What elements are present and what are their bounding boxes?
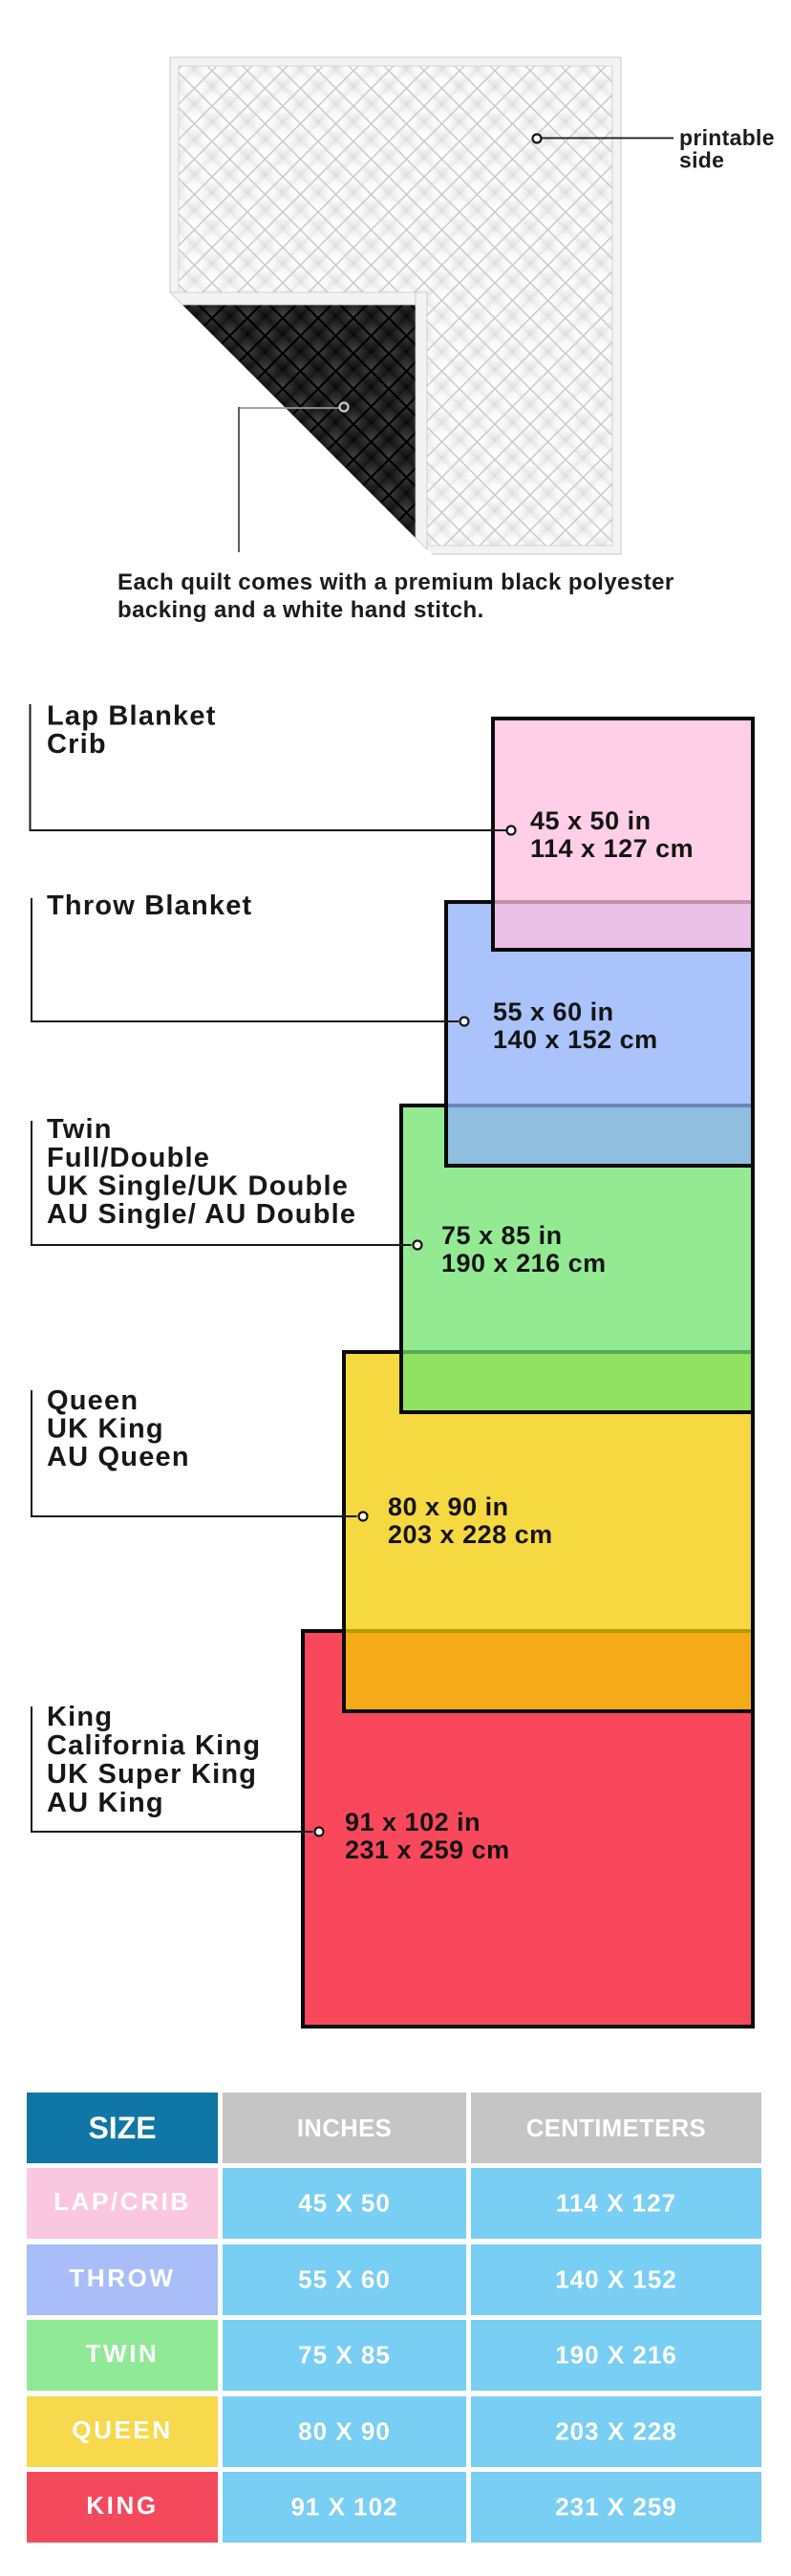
svg-text:UK Single/UK Double: UK Single/UK Double bbox=[47, 1171, 349, 1202]
svg-text:80 X 90: 80 X 90 bbox=[298, 2417, 391, 2446]
svg-text:INCHES: INCHES bbox=[297, 2115, 392, 2142]
svg-text:side: side bbox=[679, 148, 724, 173]
svg-text:Crib: Crib bbox=[47, 729, 107, 760]
svg-text:140 x 152 cm: 140 x 152 cm bbox=[493, 1025, 658, 1054]
svg-text:45 X 50: 45 X 50 bbox=[298, 2189, 391, 2218]
svg-text:UK King: UK King bbox=[47, 1414, 164, 1445]
svg-text:CENTIMETERS: CENTIMETERS bbox=[526, 2115, 706, 2142]
svg-text:Queen: Queen bbox=[47, 1385, 139, 1416]
svg-text:KING: KING bbox=[86, 2491, 158, 2520]
svg-text:AU King: AU King bbox=[47, 1788, 164, 1818]
svg-text:Throw Blanket: Throw Blanket bbox=[47, 891, 252, 921]
svg-text:55 x 60 in: 55 x 60 in bbox=[493, 998, 614, 1026]
svg-text:91 X 102: 91 X 102 bbox=[290, 2493, 397, 2522]
svg-text:printable: printable bbox=[679, 125, 775, 150]
svg-text:190 x 216 cm: 190 x 216 cm bbox=[441, 1249, 607, 1277]
svg-text:114 X 127: 114 X 127 bbox=[556, 2189, 676, 2218]
svg-text:King: King bbox=[47, 1702, 113, 1732]
svg-text:backing and a white hand stitc: backing and a white hand stitch. bbox=[118, 597, 484, 623]
svg-text:TWIN: TWIN bbox=[86, 2339, 160, 2368]
svg-text:AU Queen: AU Queen bbox=[47, 1442, 190, 1472]
svg-text:75 X 85: 75 X 85 bbox=[298, 2341, 391, 2370]
svg-text:UK Super King: UK Super King bbox=[47, 1759, 257, 1790]
svg-text:75 x 85 in: 75 x 85 in bbox=[441, 1221, 563, 1250]
svg-text:91 x 102 in: 91 x 102 in bbox=[345, 1808, 481, 1836]
svg-text:Lap Blanket: Lap Blanket bbox=[47, 701, 217, 732]
svg-text:45 x 50 in: 45 x 50 in bbox=[530, 806, 652, 835]
svg-text:LAP/CRIB: LAP/CRIB bbox=[53, 2187, 191, 2216]
svg-text:AU Single/ AU Double: AU Single/ AU Double bbox=[47, 1199, 356, 1230]
svg-text:203 X 228: 203 X 228 bbox=[555, 2417, 677, 2446]
svg-text:231 X 259: 231 X 259 bbox=[555, 2493, 677, 2522]
svg-text:190 X 216: 190 X 216 bbox=[555, 2341, 677, 2370]
svg-text:California King: California King bbox=[47, 1730, 261, 1761]
svg-text:140 X 152: 140 X 152 bbox=[555, 2265, 677, 2294]
svg-text:THROW: THROW bbox=[69, 2264, 175, 2292]
svg-text:Twin: Twin bbox=[47, 1114, 113, 1145]
svg-text:231 x 259 cm: 231 x 259 cm bbox=[345, 1835, 510, 1864]
svg-text:Full/Double: Full/Double bbox=[47, 1143, 210, 1173]
svg-text:QUEEN: QUEEN bbox=[72, 2415, 172, 2444]
svg-text:SIZE: SIZE bbox=[88, 2111, 156, 2145]
svg-text:80 x 90 in: 80 x 90 in bbox=[388, 1492, 509, 1521]
svg-text:55 X 60: 55 X 60 bbox=[298, 2265, 391, 2294]
svg-text:203 x 228 cm: 203 x 228 cm bbox=[388, 1520, 553, 1549]
svg-text:Each quilt comes with a premiu: Each quilt comes with a premium black po… bbox=[118, 569, 674, 595]
svg-text:114 x 127 cm: 114 x 127 cm bbox=[530, 834, 694, 863]
